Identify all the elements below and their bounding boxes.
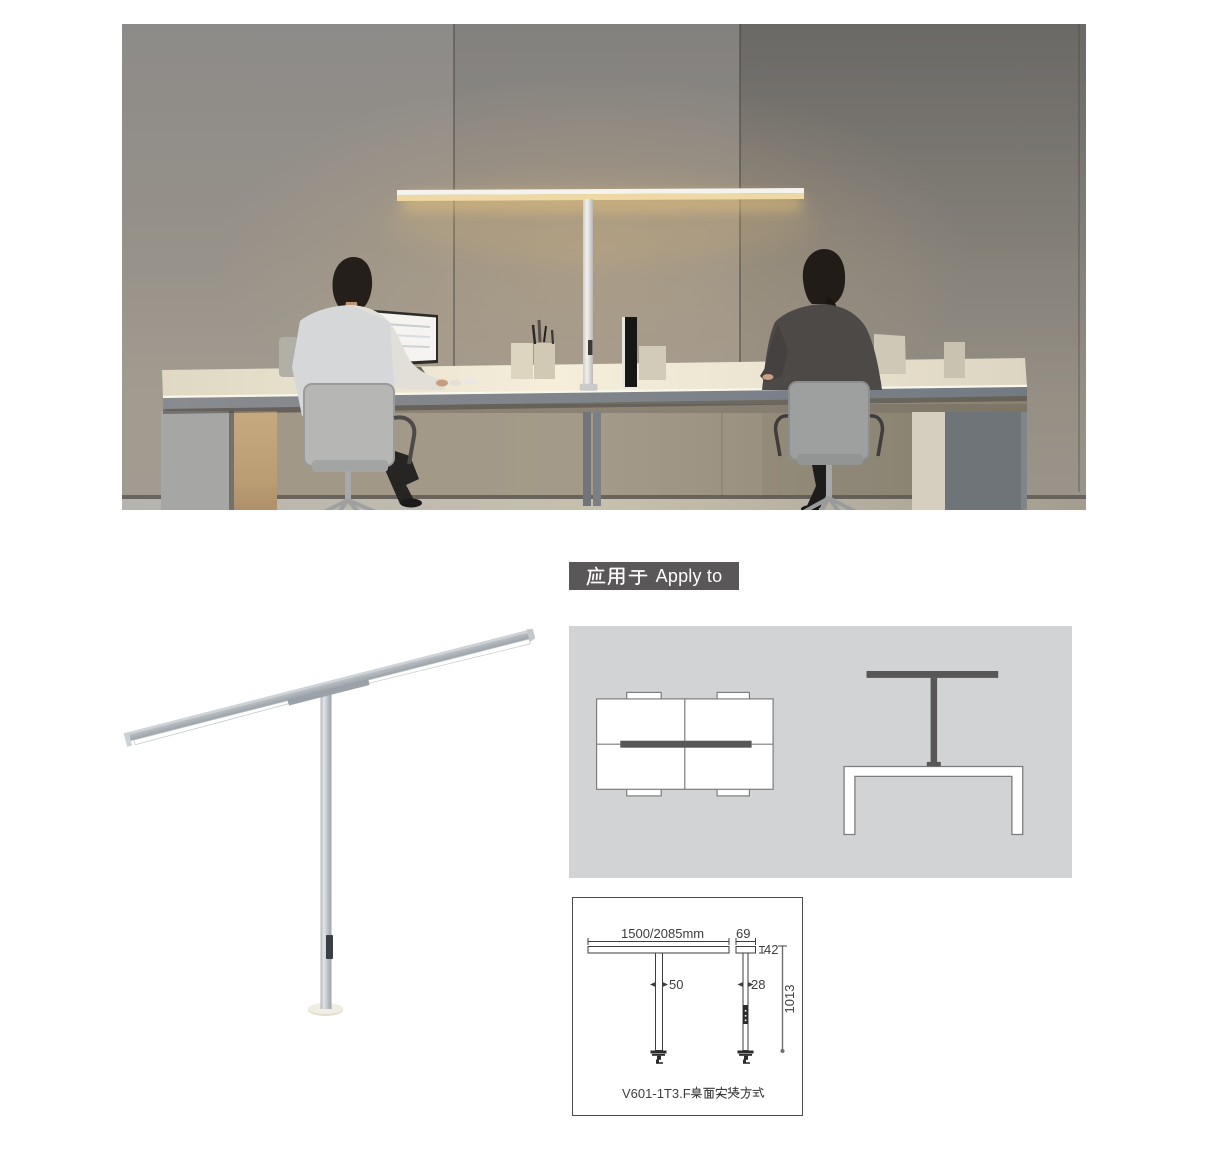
- svg-text:1013: 1013: [782, 985, 797, 1014]
- svg-text:V601-1T3.F: V601-1T3.F: [622, 1086, 691, 1101]
- svg-text:1500/2085mm: 1500/2085mm: [621, 926, 704, 941]
- svg-text:69: 69: [736, 926, 750, 941]
- svg-text:50: 50: [669, 977, 683, 992]
- svg-text:28: 28: [751, 977, 765, 992]
- svg-text:42: 42: [764, 942, 778, 957]
